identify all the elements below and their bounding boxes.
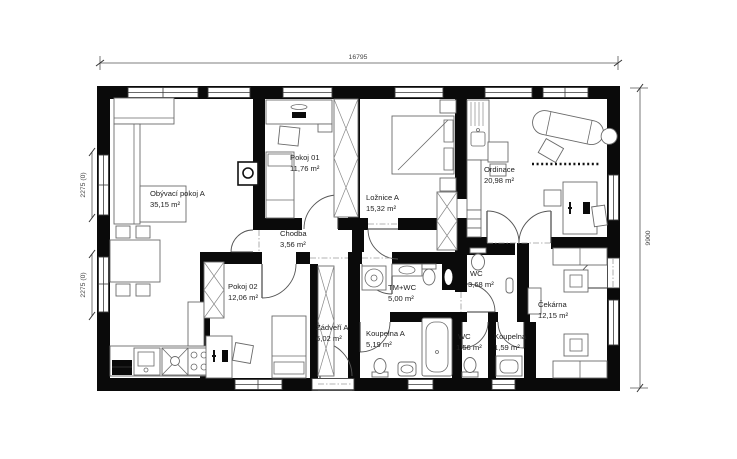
utility-fixture-icon [442,264,455,290]
toilet-icon [470,248,486,270]
toilet-icon [372,359,388,378]
room-area-cekarna: 12,15 m² [538,311,568,320]
floor-plan-drawing: 16795 9900 2275 (0) 2275 (0) [0,0,737,459]
room-label-zadveri: Zádveří A [316,323,349,332]
room-label-wc156: WC [458,332,471,341]
window-icon [543,88,588,98]
room-label-tmwc: TM+WC [388,283,417,292]
dim-width-label: 16795 [349,54,368,61]
room-area-wc368: 3,68 m² [468,280,494,289]
window-icon [395,88,443,98]
window-icon [609,300,619,345]
room-label-chodba: Chodba [280,229,307,238]
room-label-koupelna159: Koupelna [494,332,527,341]
window-icon [99,155,109,215]
room-area-chodba: 3,56 m² [280,240,306,249]
room-area-wc156: 1,56 m² [456,343,482,352]
nightstand-icon [440,100,456,113]
bathtub-icon [422,318,452,376]
dining-table-icon [110,226,160,296]
room-label-ordinace: Ordinace [484,165,515,174]
fireplace-stove-icon [238,162,258,185]
room-area-koupelna159: 1,59 m² [494,343,520,352]
window-icon [208,88,250,98]
window-icon [283,88,332,98]
dim-height-label: 9900 [645,230,652,245]
room-area-pokoj01: 11,76 m² [290,164,320,173]
bathroom-sink-icon [392,264,422,276]
room-area-tmwc: 5,00 m² [388,294,414,303]
bathroom-sink-icon [398,362,416,376]
shower-icon [496,356,522,376]
door-living-chodba [231,230,253,252]
window-icon [485,88,532,98]
nightstand-icon [440,178,456,191]
dim-window-upper-label: 2275 (0) [80,172,87,197]
wardrobe-icon [334,99,358,217]
dim-window-lower-label: 2275 (0) [80,272,87,297]
door-ordinace-double [487,211,551,243]
bed-double-icon [392,100,456,191]
room-area-pokoj02: 12,06 m² [228,293,258,302]
window-icon [609,175,619,220]
room-area-koupelna-a: 5,19 m² [366,340,392,349]
dimension-left-lower: 2275 (0) [80,250,95,320]
room-label-cekarna: Čekárna [538,300,567,309]
room-label-loznice: Ložnice A [366,193,400,202]
bathroom-sink-icon [506,278,513,293]
window-icon [99,257,109,312]
toilet-icon [422,264,436,285]
doctor-desk-icon [544,182,607,234]
room-area-zadveri: 6,02 m² [316,334,342,343]
room-label-pokoj02: Pokoj 02 [228,282,258,291]
toilet-icon [462,358,478,378]
dishwasher-icon [162,348,188,375]
door-pokoj01 [304,195,338,229]
window-icon [128,88,198,98]
dimension-top: 16795 [96,54,622,70]
room-label-obyvaci-pokoj: Obývací pokoj A [150,189,206,198]
door-pokoj02 [262,264,296,298]
bed-single-icon [272,316,306,378]
dimension-left-upper: 2275 (0) [80,148,95,222]
dimension-right: 9900 [630,84,652,392]
kitchen-counter-icon [110,302,210,376]
dental-chair-icon [525,108,619,174]
kitchen-radiator-icon [112,360,132,375]
wardrobe-icon [204,262,224,318]
room-area-obyvaci-pokoj: 35,15 m² [150,200,180,209]
window-icon [492,380,515,390]
wardrobe-icon [437,192,457,250]
sink-icon [134,348,160,375]
desk-icon [266,100,332,146]
window-icon [235,380,282,390]
floor-plan-canvas: 16795 9900 2275 (0) 2275 (0) [0,0,737,459]
washing-machine-icon [362,266,386,290]
room-label-wc368: WC [470,269,483,278]
wardrobe-icon [318,266,334,376]
window-icon [408,380,433,390]
room-label-pokoj01: Pokoj 01 [290,153,320,162]
room-area-ordinace: 20,98 m² [484,176,514,185]
room-area-loznice: 15,32 m² [366,204,396,213]
desk-icon [206,336,253,378]
room-label-koupelna-a: Koupelna A [366,329,406,338]
